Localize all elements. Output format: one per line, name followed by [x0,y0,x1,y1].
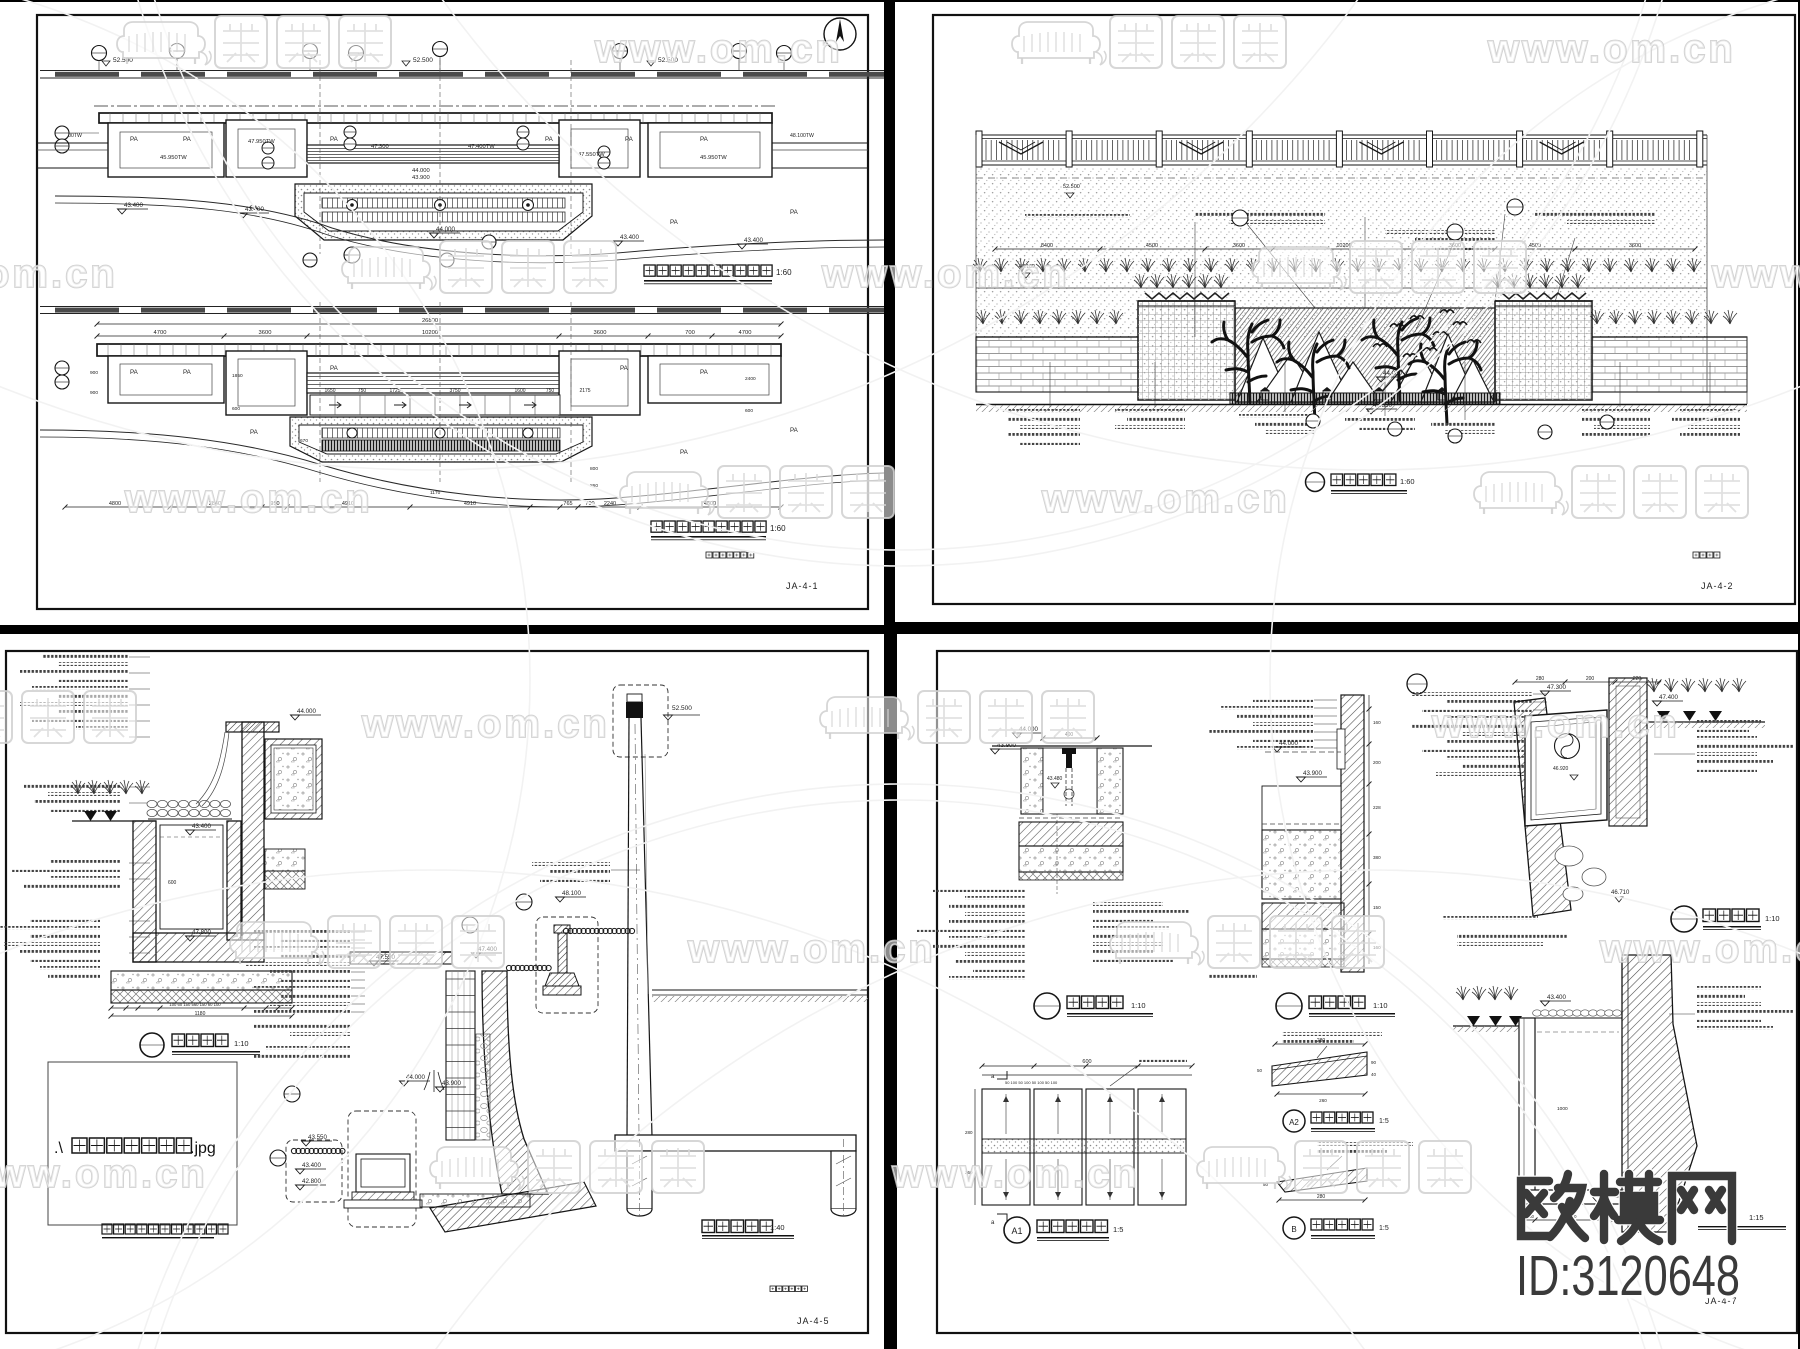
svg-text:8400: 8400 [1041,243,1053,249]
svg-text:43.400: 43.400 [744,237,763,244]
svg-text:790: 790 [585,501,594,507]
svg-text:750: 750 [358,388,367,394]
svg-text:3600: 3600 [259,330,272,336]
svg-text:720: 720 [1569,1214,1577,1219]
svg-text:4910: 4910 [342,501,354,507]
svg-text:47.400: 47.400 [478,946,497,953]
svg-text:JA-4-1: JA-4-1 [786,581,819,591]
svg-text:PA: PA [700,369,709,376]
svg-text:1:5: 1:5 [1379,1225,1389,1232]
svg-text:.jpg: .jpg [190,1140,216,1157]
svg-text:4910: 4910 [464,501,476,507]
svg-text:1850: 1850 [232,373,243,379]
svg-text:PA: PA [545,136,554,143]
svg-text:43.900: 43.900 [442,1080,461,1087]
svg-text:44.000: 44.000 [1383,370,1402,377]
svg-text:A2: A2 [1289,1118,1299,1127]
svg-text:4700: 4700 [154,330,167,336]
svg-text:43.400: 43.400 [1547,994,1566,1001]
svg-text:200: 200 [1373,760,1381,765]
svg-text:1:15: 1:15 [1749,1213,1764,1222]
svg-text:750: 750 [546,388,555,394]
svg-text:48.100: 48.100 [562,890,581,897]
svg-text:150: 150 [1527,1214,1535,1219]
svg-text:1:60: 1:60 [770,524,786,533]
svg-text:3750: 3750 [449,388,460,394]
svg-text:200: 200 [1586,676,1595,682]
svg-text:670: 670 [300,438,308,444]
svg-text:1:10: 1:10 [1373,1001,1388,1010]
svg-text:1600: 1600 [514,388,525,394]
svg-text:10200: 10200 [422,330,438,336]
svg-text:1:5: 1:5 [1379,1118,1389,1125]
svg-text:600: 600 [745,408,753,414]
svg-text:600: 600 [168,880,177,886]
svg-text:280: 280 [1536,676,1545,682]
svg-text:47.400TW: 47.400TW [468,144,495,150]
svg-text:47.550TW: 47.550TW [578,152,605,158]
svg-text:JA-4-2: JA-4-2 [1701,581,1734,591]
svg-text:45.950TW: 45.950TW [700,155,727,161]
svg-text:260: 260 [1319,1098,1327,1103]
svg-text:280: 280 [1317,1194,1326,1200]
svg-text:150: 150 [1373,905,1381,910]
svg-text:44.000: 44.000 [412,168,430,174]
svg-text:42.800: 42.800 [302,1178,321,1185]
svg-text:380: 380 [1373,855,1381,860]
svg-text:3600: 3600 [594,330,607,336]
svg-text:160: 160 [1373,720,1381,725]
svg-text:400: 400 [1065,732,1074,738]
svg-text:700: 700 [685,330,695,336]
svg-text:4800: 4800 [704,501,716,507]
svg-text:4700: 4700 [739,330,752,336]
svg-text:44.000: 44.000 [406,1074,425,1081]
svg-text:1:60: 1:60 [1400,477,1415,486]
svg-text:52.500: 52.500 [672,705,692,712]
svg-text:160: 160 [1373,945,1381,950]
svg-text:47.400: 47.400 [1659,694,1678,701]
svg-text:47.300: 47.300 [1547,684,1566,691]
svg-text:4500: 4500 [1146,243,1158,249]
svg-text:PA: PA [670,219,679,226]
svg-text:40: 40 [1371,1072,1377,1077]
svg-text:1170: 1170 [430,490,441,496]
svg-text:43.550: 43.550 [1373,402,1392,409]
svg-text:44.000: 44.000 [436,226,455,233]
svg-text:JA-4-7: JA-4-7 [1705,1296,1738,1306]
svg-text:1:10: 1:10 [1765,914,1780,923]
svg-text:4500: 4500 [1529,243,1541,249]
svg-text:900: 900 [90,370,98,376]
svg-text:43.900: 43.900 [412,175,430,181]
svg-text:47.300: 47.300 [371,144,389,150]
svg-text:52.500: 52.500 [658,57,678,64]
svg-text:47.950TW: 47.950TW [248,139,275,145]
svg-text:47.550: 47.550 [376,954,395,961]
svg-text:43.400: 43.400 [302,1162,321,1169]
svg-text:42.400: 42.400 [1599,1190,1618,1197]
svg-text:860: 860 [590,483,598,489]
svg-text:PA: PA [625,136,634,143]
svg-text:PA: PA [330,136,339,143]
svg-text:50: 50 [1263,1182,1269,1187]
svg-text:1:10: 1:10 [234,1039,249,1048]
svg-text:1:5: 1:5 [1113,1225,1123,1234]
svg-text:48.100TW: 48.100TW [790,133,814,139]
svg-text:4800: 4800 [109,501,121,507]
svg-text:600: 600 [1082,1059,1091,1065]
svg-text:PA: PA [680,449,689,456]
svg-text:1000: 1000 [1557,1106,1568,1112]
svg-text:3600: 3600 [1629,243,1641,249]
svg-text:2840: 2840 [209,501,221,507]
svg-text:280: 280 [965,1130,973,1135]
svg-text:950: 950 [270,501,279,507]
svg-text:47.800: 47.800 [192,929,211,936]
svg-text:PA: PA [620,365,629,372]
svg-text:3600: 3600 [1233,243,1245,249]
svg-text:800: 800 [590,466,598,472]
svg-text:PA: PA [700,136,709,143]
svg-text:100 60 150 560: 100 60 150 560 150 60 100 [169,1002,221,1007]
svg-text:44.000: 44.000 [1019,726,1038,733]
svg-text:45.950TW: 45.950TW [160,155,187,161]
svg-text:A1: A1 [1011,1226,1022,1236]
svg-text:46.920: 46.920 [1553,766,1569,772]
svg-text:43.400: 43.400 [124,202,143,209]
svg-text:2240: 2240 [604,501,616,507]
svg-text:PA: PA [790,209,799,216]
svg-text:2400: 2400 [745,376,756,382]
svg-text:52.500: 52.500 [1063,184,1080,190]
svg-text:PA: PA [130,136,139,143]
svg-text:PA: PA [183,136,192,143]
svg-text:46.710: 46.710 [1611,890,1630,896]
svg-text:B: B [1291,1225,1296,1234]
svg-text:43.900: 43.900 [997,742,1016,749]
svg-text:43.400: 43.400 [192,823,211,830]
svg-text:50 100 50 100 50 100 50: 50 100 50 100 50 100 50 100 [1005,1080,1058,1085]
svg-text:10200: 10200 [1336,243,1351,249]
svg-text:260: 260 [965,1170,973,1175]
svg-text:PA: PA [790,427,799,434]
svg-text:44.000: 44.000 [1279,740,1298,747]
svg-text:PA: PA [183,369,192,376]
svg-text:1:60: 1:60 [776,268,792,277]
svg-text:20: 20 [1615,1214,1620,1219]
svg-text:1:40: 1:40 [770,1223,785,1232]
svg-text:765: 765 [563,501,572,507]
svg-text:43.400: 43.400 [620,234,639,241]
svg-text:1650: 1650 [324,388,335,394]
svg-text:26800: 26800 [422,318,438,324]
svg-text:228: 228 [1373,805,1381,810]
svg-text:JA-4-5: JA-4-5 [797,1316,830,1326]
svg-text:PA: PA [130,369,139,376]
svg-text:PA: PA [330,365,339,372]
svg-text:.\: .\ [54,1140,63,1157]
svg-text:PA: PA [250,429,259,436]
svg-text:43.900: 43.900 [1303,770,1322,777]
svg-text:90: 90 [1371,1060,1377,1065]
svg-text:52.500: 52.500 [413,57,433,64]
svg-text:52.500: 52.500 [113,57,133,64]
svg-text:a: a [991,1220,995,1226]
svg-text:1180: 1180 [195,1011,206,1017]
svg-text:900: 900 [90,390,98,396]
svg-text:1:10: 1:10 [1131,1001,1146,1010]
svg-text:280: 280 [1317,1038,1326,1044]
svg-text:44.000: 44.000 [297,708,316,715]
svg-text:43.400: 43.400 [245,206,264,213]
svg-text:600: 600 [232,406,240,412]
svg-text:1725: 1725 [389,388,400,394]
svg-text:50: 50 [1257,1068,1263,1073]
svg-text:3600: 3600 [1449,243,1461,249]
svg-text:2175: 2175 [579,388,590,394]
svg-text:43.480: 43.480 [1047,776,1063,782]
